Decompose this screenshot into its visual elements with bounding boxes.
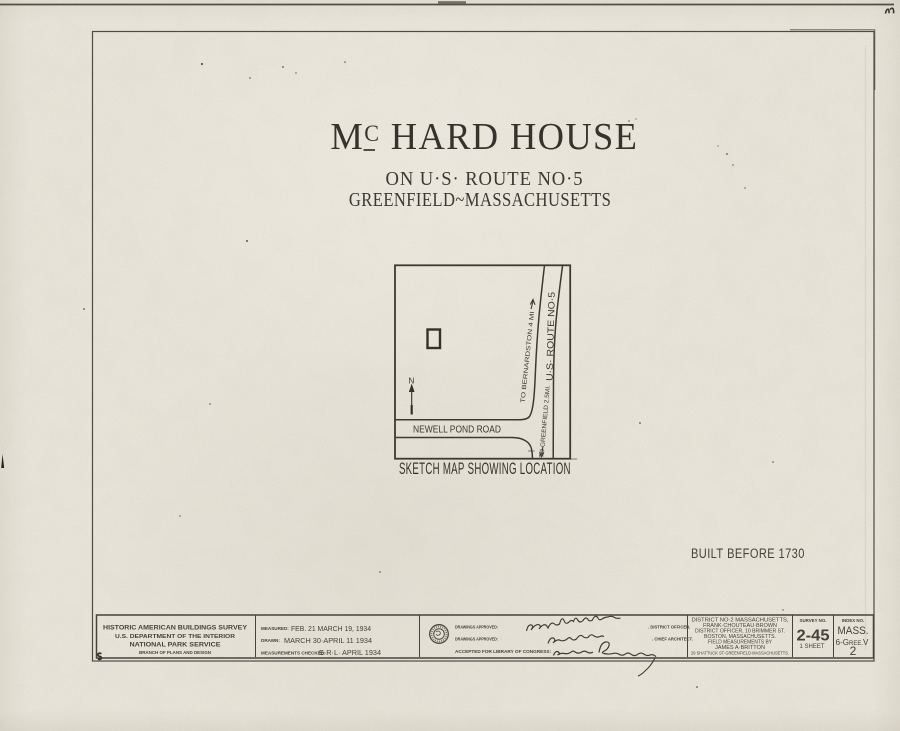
- svg-text:INDEX NO.: INDEX NO.: [842, 618, 864, 623]
- svg-text:. DISTRICT OFFICER.: . DISTRICT OFFICER.: [648, 625, 690, 630]
- svg-text:MASS.: MASS.: [838, 625, 869, 637]
- svg-text:MARCH 30·APRIL 11 1934: MARCH 30·APRIL 11 1934: [284, 636, 372, 645]
- svg-text:TO BERNARDSTON 4 MI: TO BERNARDSTON 4 MI: [520, 311, 537, 404]
- svg-text:MEASUREMENTS CHECKED:: MEASUREMENTS CHECKED:: [261, 651, 326, 656]
- svg-text:DRAWN:: DRAWN:: [261, 638, 280, 643]
- svg-text:DRAWINGS APPROVED:: DRAWINGS APPROVED:: [455, 637, 498, 643]
- svg-text:HISTORIC AMERICAN BUILDINGS SU: HISTORIC AMERICAN BUILDINGS SURVEY: [103, 625, 248, 632]
- svg-text:ACCEPTED FOR LIBRARY OF CONGRE: ACCEPTED FOR LIBRARY OF CONGRESS:: [455, 649, 551, 655]
- svg-text:FEB. 21 MARCH 19, 1934: FEB. 21 MARCH 19, 1934: [291, 624, 371, 633]
- svg-text:NATIONAL PARK SERVICE: NATIONAL PARK SERVICE: [130, 642, 221, 649]
- svg-text:SURVEY NO.: SURVEY NO.: [800, 618, 827, 623]
- svg-text:TO GREENFIELD 2.5MI.: TO GREENFIELD 2.5MI.: [539, 385, 552, 459]
- svg-text:1 SHEET: 1 SHEET: [799, 644, 824, 650]
- svg-text:DRAWINGS APPROVED:: DRAWINGS APPROVED:: [455, 625, 498, 631]
- svg-text:. CHIEF ARCHITECT.: . CHIEF ARCHITECT.: [652, 637, 693, 642]
- svg-text:NEWELL POND ROAD: NEWELL POND ROAD: [413, 425, 501, 436]
- svg-text:MEASURED:: MEASURED:: [261, 626, 289, 631]
- svg-text:BRANCH OF PLANS AND DESIGN: BRANCH OF PLANS AND DESIGN: [139, 650, 212, 655]
- svg-text:E·R·L· APRIL 1934: E·R·L· APRIL 1934: [319, 648, 381, 657]
- svg-text:2: 2: [850, 644, 857, 658]
- svg-text:2-45: 2-45: [797, 628, 830, 645]
- svg-text:N: N: [409, 377, 415, 386]
- svg-text:29 SHATTUCK ST·GREENFIELD·MASS: 29 SHATTUCK ST·GREENFIELD·MASSACHUSETTS.: [691, 651, 789, 656]
- svg-text:U·S· ROUTE NO·5: U·S· ROUTE NO·5: [545, 292, 557, 381]
- svg-text:U.S. DEPARTMENT OF THE INTERIO: U.S. DEPARTMENT OF THE INTERIOR: [115, 634, 235, 640]
